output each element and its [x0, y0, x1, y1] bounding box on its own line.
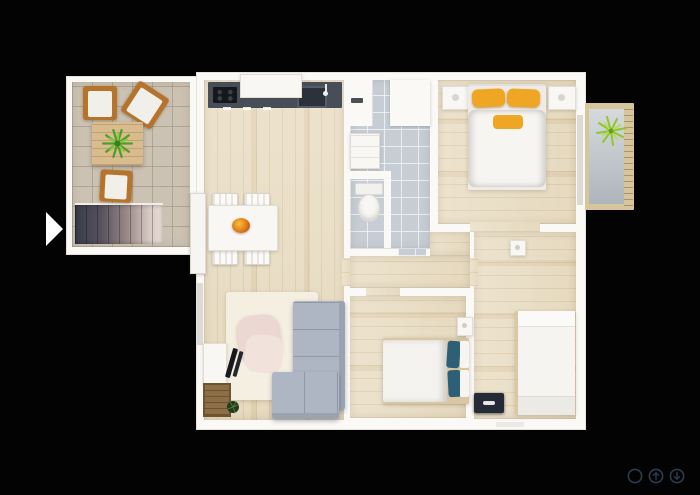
opening-bathroom-door [398, 249, 426, 256]
shower-tray [350, 80, 373, 126]
arrow-down-circle-icon[interactable] [669, 468, 685, 484]
nightstand-knob [452, 94, 459, 101]
potted-plant-small [226, 400, 240, 414]
balcony-plant [593, 113, 629, 149]
chair-cushion [104, 174, 127, 199]
terrace-chair [99, 169, 133, 203]
circle-icon[interactable] [627, 468, 643, 484]
balcony-door [577, 115, 583, 205]
kitchen-faucet-base [323, 91, 328, 96]
bed-fold [518, 396, 575, 415]
bathroom-vanity [350, 133, 380, 169]
chair-cushion [88, 91, 112, 117]
window-sill-kitchen [240, 74, 302, 98]
nightstand-knob [558, 94, 565, 101]
yellow-pillow [507, 88, 541, 107]
cabinet-handle [223, 107, 231, 110]
white-pillow [460, 370, 469, 397]
nightstand [442, 86, 470, 110]
white-pillow [460, 341, 469, 368]
wc-wall [384, 171, 391, 248]
nightstand-2 [457, 317, 473, 336]
room-hallway [350, 256, 470, 288]
toilet-bowl [358, 194, 380, 222]
shower-faucet [351, 98, 363, 103]
terrace-plant [99, 125, 136, 162]
teal-pillow [446, 341, 461, 369]
dark-chest [474, 393, 504, 413]
yellow-pillow [472, 88, 506, 108]
next-arrow-button[interactable] [46, 212, 65, 246]
opening-hall-bedroom2 [366, 288, 400, 296]
opening-bedroom1-bedroom3 [470, 222, 540, 232]
opening-hall-living [342, 258, 350, 286]
terrace-glass-door [190, 193, 206, 274]
yellow-throw [493, 115, 523, 129]
window-living [197, 283, 203, 345]
dining-chair [244, 249, 270, 265]
viewer-controls [627, 468, 685, 484]
bed-pillow-strip [518, 311, 575, 327]
arrow-up-circle-icon[interactable] [648, 468, 664, 484]
terrace-chair [83, 86, 117, 120]
bottom-door-mark [496, 422, 524, 427]
cooktop [213, 87, 237, 103]
stair-treads [75, 205, 163, 244]
armchair-cushion [243, 333, 285, 375]
cabinet-handle [263, 107, 271, 110]
fruit-bowl [232, 218, 250, 233]
viewer-stage [0, 0, 700, 495]
corner-sofa-chaise [272, 372, 339, 419]
shower-partition [390, 80, 430, 126]
chest-handle [483, 401, 495, 405]
nightstand [548, 86, 576, 110]
stairs [75, 203, 163, 244]
tv-console [203, 343, 227, 385]
nightstand-item [462, 323, 467, 328]
floor-plan-image [66, 71, 634, 430]
duvet-2 [383, 340, 447, 402]
dining-chair [212, 249, 238, 265]
cabinet-dot [515, 245, 520, 250]
room-hallway-nook [430, 232, 470, 256]
cabinet-handle [243, 107, 251, 110]
wall-cabinet [510, 240, 526, 256]
opening-hall-bedroom3 [470, 258, 478, 286]
single-bed [515, 311, 575, 415]
